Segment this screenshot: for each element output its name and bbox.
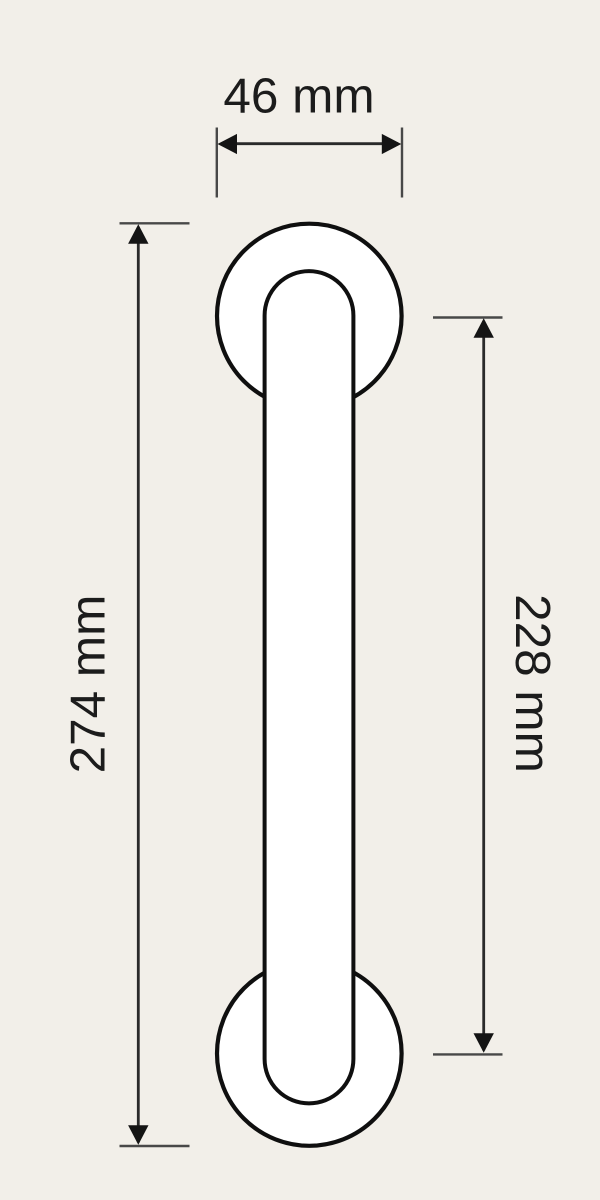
svg-text:274 mm: 274 mm <box>61 595 116 774</box>
svg-text:46 mm: 46 mm <box>223 69 374 124</box>
svg-text:228 mm: 228 mm <box>505 594 560 773</box>
